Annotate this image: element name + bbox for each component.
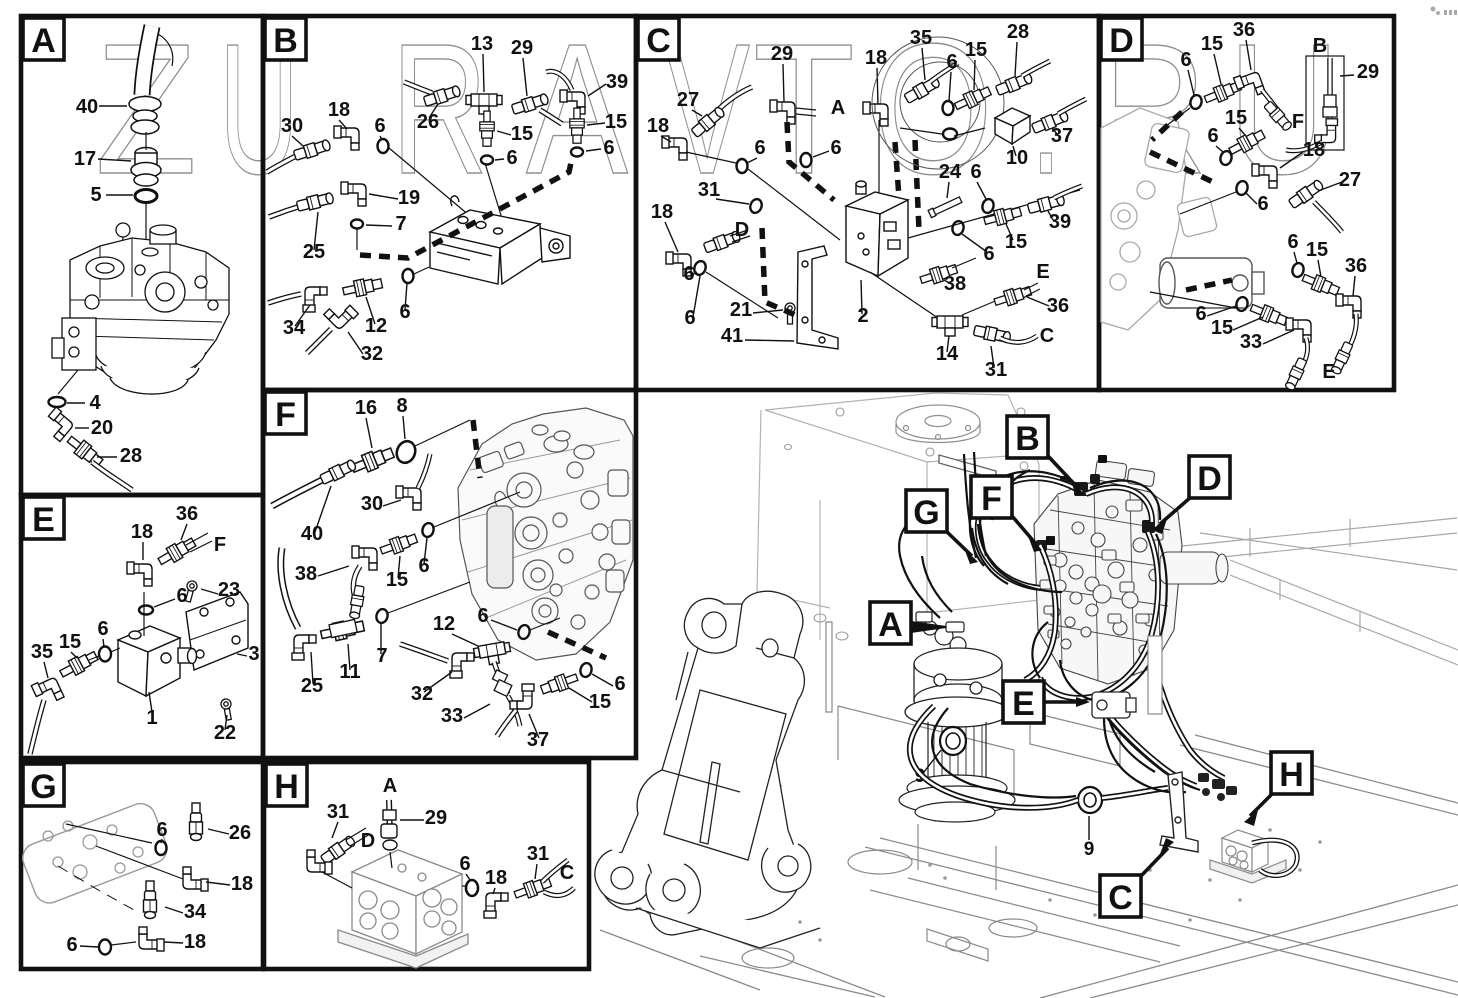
svg-text:18: 18 (1303, 139, 1325, 161)
svg-text:A: A (878, 606, 903, 644)
svg-text:27: 27 (677, 89, 699, 111)
svg-text:F: F (275, 396, 296, 434)
svg-text:36: 36 (1047, 295, 1069, 317)
svg-text:30: 30 (361, 493, 383, 515)
svg-text:6: 6 (176, 585, 187, 607)
svg-text:6: 6 (97, 618, 108, 640)
svg-text:6: 6 (1207, 125, 1218, 147)
svg-text:15: 15 (965, 39, 987, 61)
svg-text:28: 28 (1007, 21, 1029, 43)
svg-text:15: 15 (589, 691, 611, 713)
svg-text:E: E (1012, 685, 1035, 723)
svg-text:19: 19 (398, 187, 420, 209)
svg-text:8: 8 (396, 395, 407, 417)
svg-text:31: 31 (698, 179, 720, 201)
svg-text:18: 18 (647, 115, 669, 137)
svg-text:18: 18 (131, 521, 153, 543)
svg-text:28: 28 (120, 445, 142, 467)
svg-text:6: 6 (970, 161, 981, 183)
svg-text:D: D (1197, 460, 1222, 498)
svg-text:31: 31 (327, 801, 349, 823)
svg-text:32: 32 (361, 343, 383, 365)
svg-text:18: 18 (231, 873, 253, 895)
svg-text:40: 40 (301, 523, 323, 545)
svg-text:15: 15 (1005, 231, 1027, 253)
svg-text:A: A (383, 775, 397, 797)
svg-text:29: 29 (511, 37, 533, 59)
svg-text:6: 6 (614, 673, 625, 695)
svg-text:F: F (214, 534, 226, 556)
svg-text:C: C (646, 22, 671, 60)
svg-text:36: 36 (1345, 255, 1367, 277)
svg-text:D: D (361, 830, 375, 852)
svg-text:6: 6 (830, 137, 841, 159)
svg-text:6: 6 (946, 51, 957, 73)
svg-text:G: G (913, 494, 939, 532)
svg-text:H: H (274, 768, 299, 806)
svg-text:26: 26 (417, 111, 439, 133)
svg-text:38: 38 (944, 273, 966, 295)
svg-text:7: 7 (376, 645, 387, 667)
svg-text:B: B (1313, 35, 1327, 57)
svg-text:18: 18 (651, 201, 673, 223)
svg-text:G: G (30, 768, 56, 806)
svg-text:C: C (560, 862, 574, 884)
svg-text:7: 7 (395, 213, 406, 235)
svg-text:6: 6 (66, 934, 77, 956)
svg-text:39: 39 (1049, 211, 1071, 233)
svg-text:38: 38 (295, 563, 317, 585)
svg-text:6: 6 (1287, 231, 1298, 253)
svg-text:15: 15 (1225, 107, 1247, 129)
svg-text:12: 12 (433, 613, 455, 635)
svg-text:32: 32 (411, 683, 433, 705)
svg-text:41: 41 (721, 325, 743, 347)
svg-text:6: 6 (1180, 49, 1191, 71)
svg-text:15: 15 (511, 123, 533, 145)
svg-text:12: 12 (365, 315, 387, 337)
svg-text:E: E (32, 501, 55, 539)
svg-text:31: 31 (527, 843, 549, 865)
svg-text:35: 35 (31, 641, 53, 663)
svg-text:37: 37 (1051, 125, 1073, 147)
svg-text:21: 21 (730, 299, 752, 321)
svg-text:15: 15 (605, 111, 627, 133)
svg-text:35: 35 (910, 27, 932, 49)
svg-text:2: 2 (857, 305, 868, 327)
svg-text:26: 26 (229, 822, 251, 844)
svg-text:18: 18 (328, 99, 350, 121)
svg-text:36: 36 (176, 503, 198, 525)
svg-text:3: 3 (248, 643, 259, 665)
svg-text:9: 9 (1084, 839, 1095, 860)
svg-text:18: 18 (485, 867, 507, 889)
svg-text:6: 6 (603, 137, 614, 159)
svg-text:15: 15 (386, 569, 408, 591)
svg-text:C: C (1108, 879, 1133, 917)
svg-text:10: 10 (1006, 147, 1028, 169)
svg-text:C: C (1040, 325, 1054, 347)
svg-text:15: 15 (1201, 33, 1223, 55)
svg-text:D: D (735, 219, 749, 241)
svg-text:6: 6 (1257, 193, 1268, 215)
svg-text:31: 31 (985, 359, 1007, 381)
svg-text:6: 6 (1195, 303, 1206, 325)
svg-text:27: 27 (1339, 169, 1361, 191)
svg-text:29: 29 (1357, 61, 1379, 83)
svg-text:D: D (1109, 22, 1134, 60)
svg-text:15: 15 (1306, 239, 1328, 261)
svg-text:E: E (1036, 261, 1049, 283)
svg-text:4: 4 (89, 392, 101, 414)
svg-text:39: 39 (606, 71, 628, 93)
svg-text:6: 6 (983, 243, 994, 265)
svg-text:15: 15 (1211, 317, 1233, 339)
svg-text:A: A (31, 22, 56, 60)
svg-text:34: 34 (283, 317, 306, 339)
svg-text:33: 33 (1240, 331, 1262, 353)
svg-text:15: 15 (59, 631, 81, 653)
svg-text:18: 18 (184, 931, 206, 953)
svg-text:30: 30 (281, 115, 303, 137)
svg-text:23: 23 (218, 579, 240, 601)
svg-text:13: 13 (471, 33, 493, 55)
svg-text:36: 36 (1233, 19, 1255, 41)
svg-text:29: 29 (425, 807, 447, 829)
svg-text:F: F (1292, 111, 1304, 133)
svg-text:6: 6 (374, 115, 385, 137)
svg-text:6: 6 (156, 819, 167, 841)
svg-text:A: A (831, 97, 845, 119)
svg-text:E: E (1322, 361, 1335, 383)
svg-text:.: . (1030, 6, 1062, 213)
svg-text:40: 40 (76, 96, 98, 118)
svg-text:B: B (273, 22, 298, 60)
svg-text:5: 5 (90, 184, 101, 206)
svg-text:6: 6 (477, 605, 488, 627)
svg-text:17: 17 (74, 148, 96, 170)
svg-text:16: 16 (355, 397, 377, 419)
svg-text:B: B (1015, 420, 1040, 458)
svg-text:29: 29 (771, 43, 793, 65)
svg-text:F: F (981, 480, 1002, 518)
svg-text:H: H (1279, 756, 1304, 794)
svg-text:6: 6 (754, 137, 765, 159)
svg-text:6: 6 (506, 147, 517, 169)
svg-text:20: 20 (91, 417, 113, 439)
svg-text:33: 33 (441, 705, 463, 727)
svg-text:6: 6 (459, 853, 470, 875)
svg-text:34: 34 (184, 901, 207, 923)
svg-text:24: 24 (939, 161, 962, 183)
svg-text:37: 37 (527, 729, 549, 751)
